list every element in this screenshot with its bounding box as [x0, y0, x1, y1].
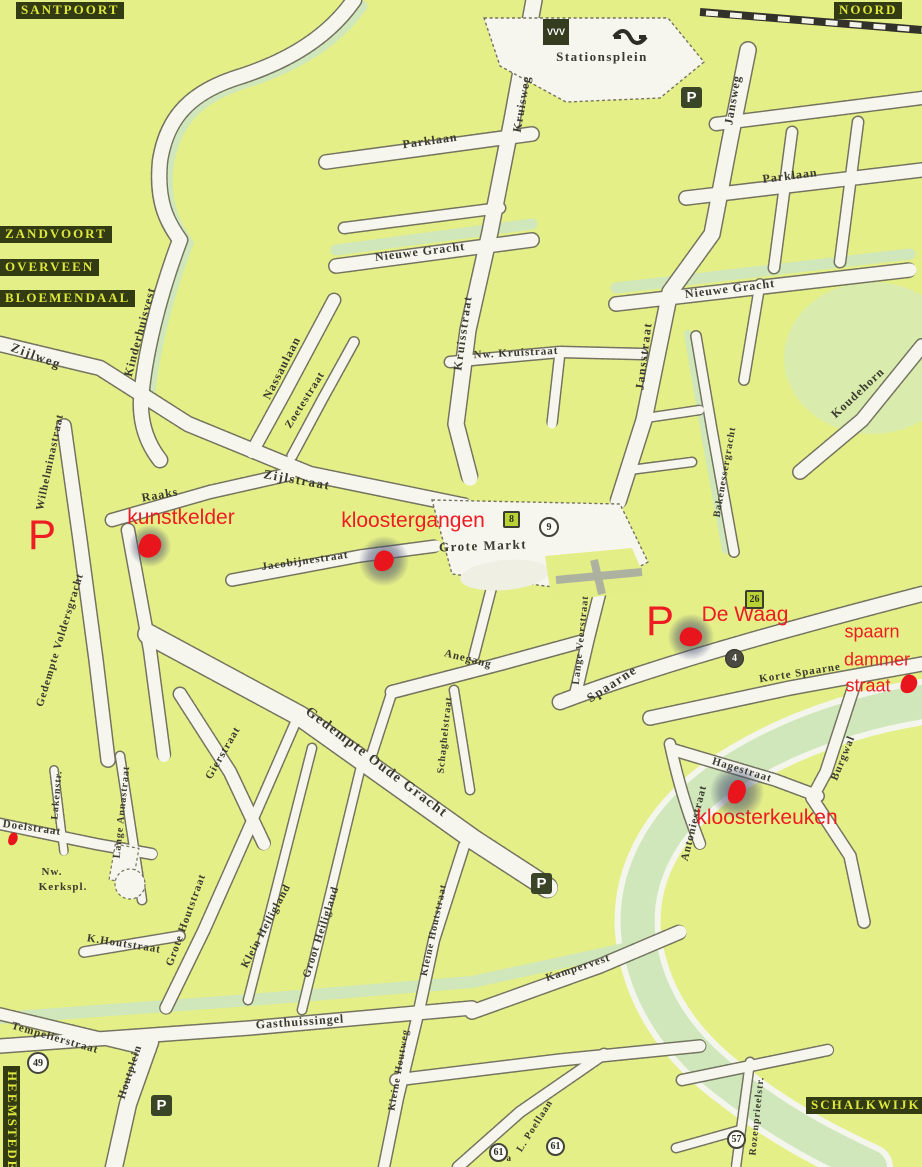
- street-label-kampervest: Kampervest: [544, 952, 612, 984]
- street-label-grote-houtstraat: Grote Houtstraat: [164, 872, 209, 968]
- route-badge-61: 61: [546, 1137, 565, 1156]
- street-label-gedempte-voldersgracht: Gedempte Voldersgracht: [34, 572, 86, 708]
- street-label-groot-heiligland: Groot Heiligland: [301, 885, 342, 980]
- street-label-klein-heiligland: Klein Heiligland: [239, 882, 293, 970]
- region-label-heemstede: HEEMSTEDE: [3, 1066, 20, 1167]
- street-label-lange-annastraat: Lange Annastraat: [112, 765, 133, 859]
- region-label-bloemendaal: BLOEMENDAAL: [0, 290, 135, 307]
- street-label-kruisweg: Kruisweg: [510, 74, 535, 133]
- street-label-grote-markt: Grote Markt: [439, 536, 528, 555]
- street-label-burgwal: Burgwal: [829, 734, 858, 782]
- region-label-overveen: OVERVEEN: [0, 259, 99, 276]
- street-label-nieuwe-gracht: Nieuwe Gracht: [374, 239, 466, 265]
- street-label-kruisstraat: Kruisstraat: [450, 294, 475, 371]
- poi-label-spaarn: spaarn: [844, 622, 899, 643]
- haarlem-city-map: VVV StationspleinParklaanParklaanKruiswe…: [0, 0, 922, 1167]
- route-badge-61a: 61a: [489, 1143, 508, 1162]
- street-label-k-houtstraat: K.Houtstraat: [86, 932, 162, 956]
- badge-suffix: a: [506, 1153, 511, 1163]
- route-badge-49: 49: [27, 1052, 49, 1074]
- street-label-lakenstr: Lakenstr.: [49, 770, 64, 820]
- street-label-bakenessergracht: Bakenessergracht: [712, 426, 739, 519]
- street-label-schaghelstraat: Schaghelstraat: [435, 696, 454, 774]
- street-label-zijlstraat: Zijlstraat: [262, 466, 331, 494]
- street-label-parklaan: Parklaan: [762, 165, 819, 187]
- street-label-nieuwe-gracht: Nieuwe Gracht: [684, 276, 776, 302]
- street-label-gedempte-oude-gracht: Gedempte Oude Gracht: [302, 704, 450, 821]
- region-label-zandvoort: ZANDVOORT: [0, 226, 112, 243]
- poi-label-dammer: dammer: [844, 650, 910, 671]
- route-badge-4: 4: [725, 649, 744, 668]
- route-badge-8: 8: [503, 511, 520, 528]
- street-label-spaarne: Spaarne: [584, 662, 640, 706]
- street-label-stationsplein: Stationsplein: [556, 49, 648, 65]
- street-label-houtplein: Houtplein: [116, 1043, 145, 1100]
- street-label-kerkspl: Kerkspl.: [39, 881, 88, 893]
- poi-label-straat: straat: [845, 676, 890, 697]
- route-badge-26: 26: [745, 590, 764, 609]
- poi-marker: [899, 673, 919, 695]
- street-label-gasthuissingel: Gasthuissingel: [255, 1011, 345, 1032]
- street-label-nw: Nw.: [41, 866, 62, 878]
- poi-label-kloostergangen: kloostergangen: [341, 509, 485, 533]
- poi-marker: [7, 832, 19, 847]
- street-label-jacobijnestraat: Jacobijnestraat: [261, 549, 350, 573]
- street-label-jansstraat: Jansstraat: [632, 321, 655, 391]
- street-label-wilhelminastraat: Wilhelminastraat: [34, 413, 66, 512]
- street-label-rozenprieelstr: Rozenprieelstr.: [747, 1076, 766, 1156]
- route-badge-9: 9: [539, 517, 559, 537]
- street-label-kleine-houtweg: Kleine Houtweg: [386, 1028, 411, 1111]
- parking-icon: P: [151, 1095, 172, 1116]
- street-label-parklaan: Parklaan: [402, 130, 459, 153]
- street-label-zijlweg: Zijlweg: [9, 340, 64, 373]
- route-badge-57: 57: [727, 1130, 746, 1149]
- street-label-korte-spaarne: Korte Spaarne: [758, 661, 841, 686]
- parking-icon: P: [531, 873, 552, 894]
- street-label-raaks: Raaks: [140, 484, 179, 505]
- region-label-santpoort: SANTPOORT: [16, 2, 124, 19]
- red-parking-letter: P: [28, 514, 56, 556]
- street-label-gierstraat: Gierstraat: [203, 725, 243, 782]
- parking-icon: P: [681, 87, 702, 108]
- street-label-zoetestraat: Zoetestraat: [283, 369, 327, 430]
- street-label-koudehorn: Koudehorn: [828, 364, 888, 421]
- street-label-nassaulaan: Nassaulaan: [260, 334, 305, 402]
- region-label-noord: NOORD: [834, 2, 902, 19]
- street-label-lange-veerstraat: Lange Veerstraat: [571, 595, 591, 685]
- street-label-jansweg: Jansweg: [721, 74, 745, 126]
- street-label-tempelierstraat: Tempelierstraat: [10, 1020, 100, 1056]
- street-label-anegang: Anegang: [443, 647, 493, 670]
- label-layer: StationspleinParklaanParklaanKruiswegJan…: [0, 0, 922, 1167]
- street-label-nw-kruistraat: Nw. Kruistraat: [473, 345, 558, 361]
- red-parking-letter: P: [646, 600, 674, 642]
- region-label-schalkwijk: SCHALKWIJK: [806, 1097, 922, 1114]
- street-label-kleine-houtstraat: Kleine Houtstraat: [419, 883, 449, 977]
